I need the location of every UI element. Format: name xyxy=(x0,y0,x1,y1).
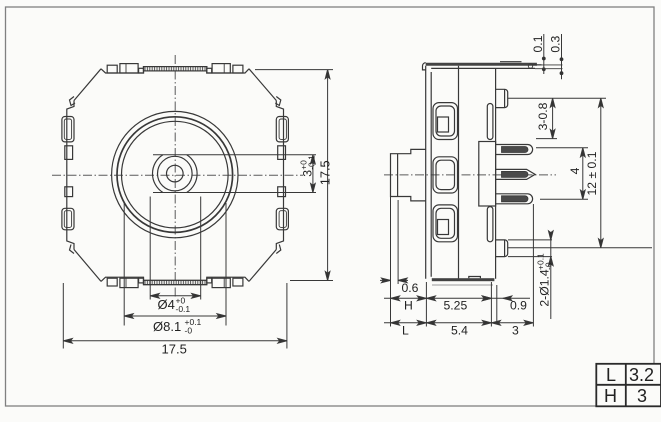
svg-text:0.1: 0.1 xyxy=(531,35,545,52)
svg-text:H: H xyxy=(404,299,413,313)
svg-text:5.25: 5.25 xyxy=(444,299,468,313)
svg-text:0.9: 0.9 xyxy=(510,299,527,313)
svg-text:3.2: 3.2 xyxy=(629,365,654,385)
svg-text:3: 3 xyxy=(637,386,647,406)
svg-text:-0: -0 xyxy=(544,262,554,270)
svg-text:17.5: 17.5 xyxy=(162,342,187,357)
svg-text:17.5: 17.5 xyxy=(317,160,332,185)
svg-text:Ø8.1: Ø8.1 xyxy=(153,319,181,334)
svg-text:0.3: 0.3 xyxy=(549,36,563,53)
svg-text:3: 3 xyxy=(512,324,519,338)
svg-text:L: L xyxy=(402,324,409,338)
svg-text:-0.1: -0.1 xyxy=(307,155,317,170)
svg-text:3-0.8: 3-0.8 xyxy=(536,102,550,130)
svg-text:0.6: 0.6 xyxy=(402,281,419,295)
svg-text:4: 4 xyxy=(568,167,582,174)
svg-text:-0.1: -0.1 xyxy=(176,304,191,314)
svg-text:-0: -0 xyxy=(185,326,193,336)
svg-text:Ø4: Ø4 xyxy=(158,297,175,312)
svg-text:5.4: 5.4 xyxy=(451,324,468,338)
svg-text:L: L xyxy=(606,365,616,385)
svg-text:2-Ø1.4: 2-Ø1.4 xyxy=(538,269,552,306)
svg-text:H: H xyxy=(604,386,617,406)
svg-text:12 ± 0.1: 12 ± 0.1 xyxy=(585,151,599,195)
